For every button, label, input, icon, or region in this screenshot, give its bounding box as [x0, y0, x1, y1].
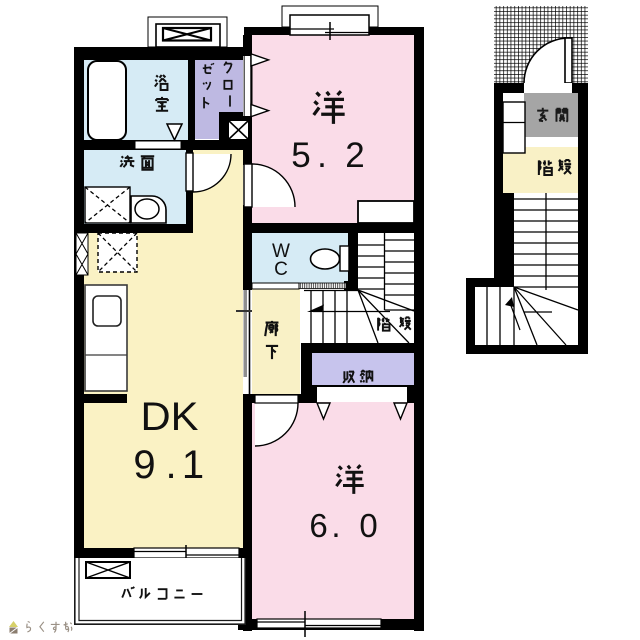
svg-text:.: . [317, 136, 327, 175]
svg-text:0: 0 [359, 507, 377, 544]
svg-text:5: 5 [291, 136, 310, 175]
svg-text:1: 1 [182, 443, 204, 487]
svg-text:9: 9 [133, 443, 155, 487]
svg-text:C: C [274, 259, 288, 280]
svg-text:DK: DK [141, 395, 199, 439]
svg-text:6: 6 [309, 507, 327, 544]
svg-text:.: . [165, 443, 176, 487]
svg-text:.: . [331, 507, 340, 544]
svg-text:2: 2 [345, 136, 364, 175]
